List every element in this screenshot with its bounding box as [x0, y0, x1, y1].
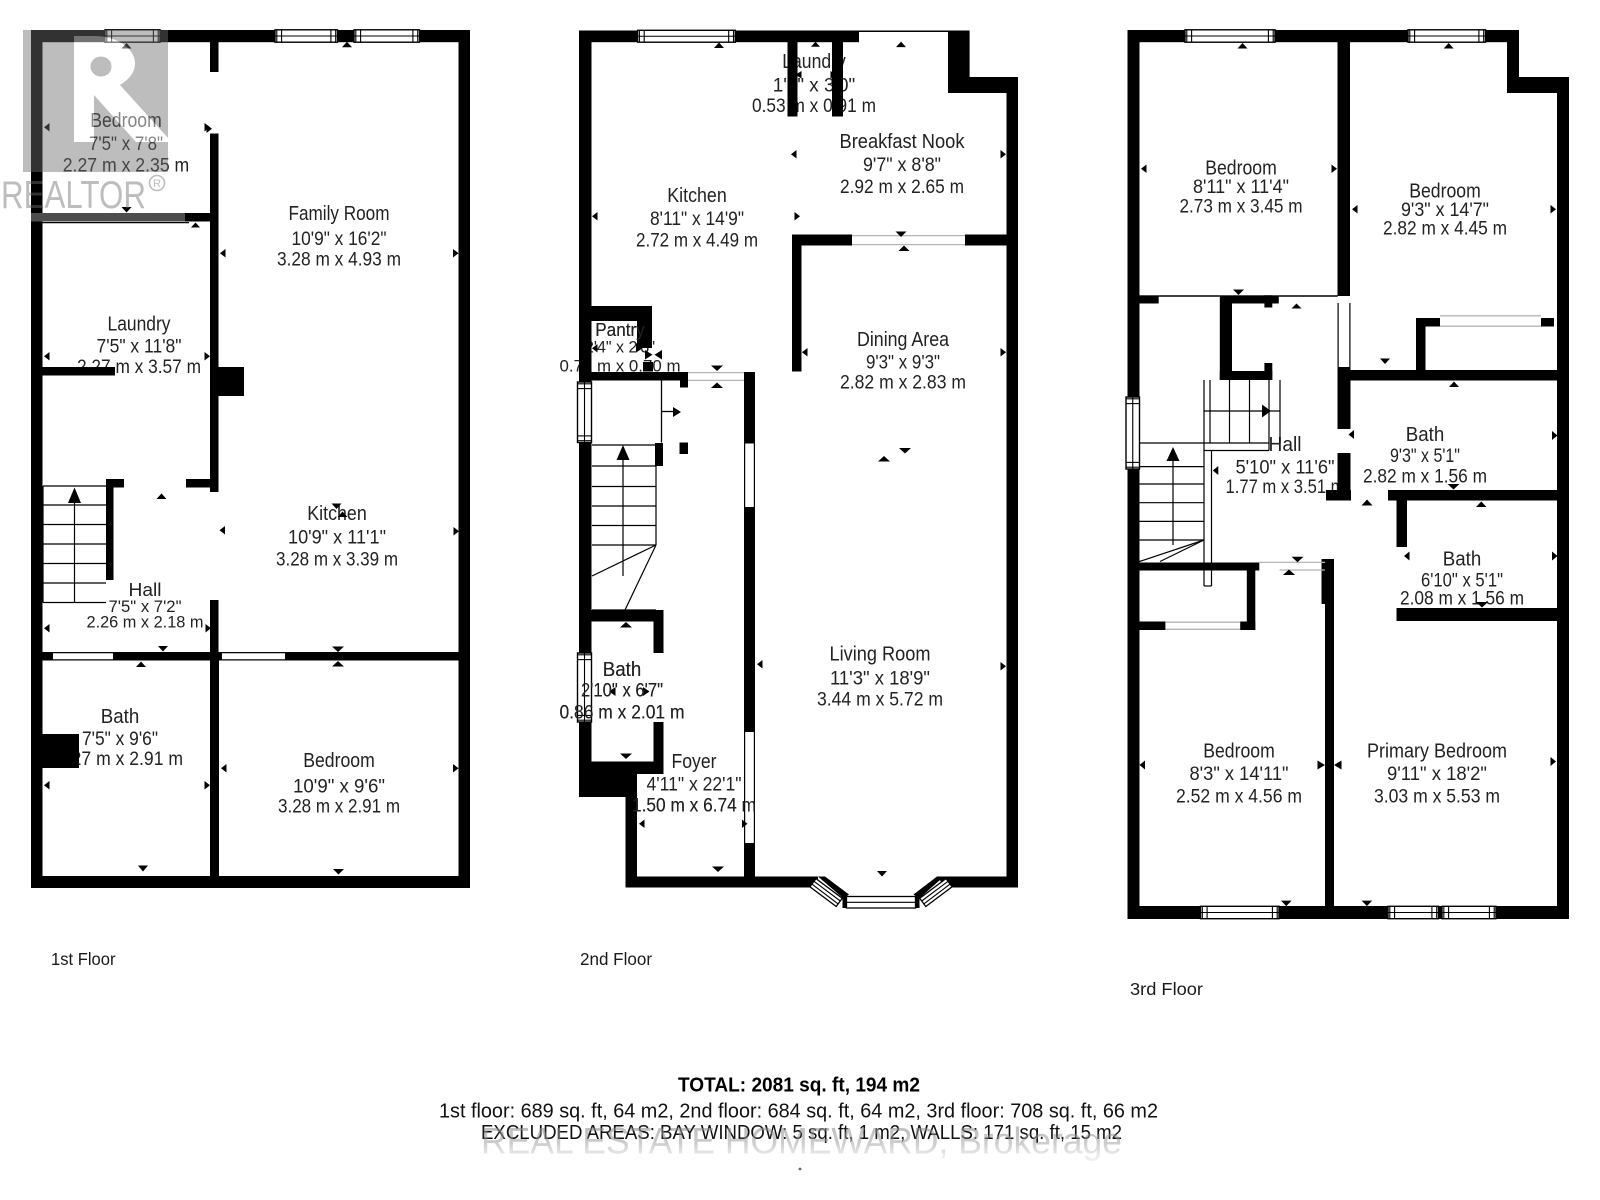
svg-text:8'11" x 11'4": 8'11" x 11'4": [1193, 177, 1289, 198]
svg-text:2.26 m x 2.18 m: 2.26 m x 2.18 m: [87, 613, 204, 632]
svg-text:Hall: Hall: [1269, 434, 1302, 456]
svg-text:2.82 m x 4.45 m: 2.82 m x 4.45 m: [1383, 219, 1507, 240]
svg-text:8'11" x 14'9": 8'11" x 14'9": [650, 209, 744, 230]
svg-text:2.52 m x 4.56 m: 2.52 m x 4.56 m: [1176, 787, 1302, 808]
svg-text:2nd Floor: 2nd Floor: [580, 949, 652, 969]
svg-text:Dining Area: Dining Area: [857, 329, 950, 351]
svg-text:Bedroom: Bedroom: [1203, 741, 1275, 763]
svg-text:Foyer: Foyer: [672, 751, 717, 773]
svg-text:Family Room: Family Room: [289, 203, 390, 225]
svg-text:2.92 m x 2.65 m: 2.92 m x 2.65 m: [840, 177, 964, 198]
svg-text:10'9" x 16'2": 10'9" x 16'2": [292, 229, 387, 250]
svg-text:Kitchen: Kitchen: [667, 185, 727, 207]
svg-text:Bath: Bath: [1406, 424, 1445, 446]
svg-text:Primary Bedroom: Primary Bedroom: [1367, 741, 1507, 763]
svg-text:Bath: Bath: [603, 659, 642, 681]
svg-text:REAL ESTATE HOMEWARD, Brokerag: REAL ESTATE HOMEWARD, Brokerage: [481, 1121, 1122, 1162]
svg-text:3.03 m x 5.53 m: 3.03 m x 5.53 m: [1374, 787, 1500, 808]
svg-text:7'5" x 9'6": 7'5" x 9'6": [82, 729, 158, 750]
svg-text:9'7" x 8'8": 9'7" x 8'8": [863, 155, 941, 176]
svg-text:1st floor: 689 sq. ft, 64 m2,: 1st floor: 689 sq. ft, 64 m2, 2nd floor:…: [439, 1100, 1158, 1123]
svg-text:R: R: [153, 178, 161, 190]
svg-text:Bedroom: Bedroom: [303, 750, 375, 772]
svg-text:0.53 m x 0.91 m: 0.53 m x 0.91 m: [752, 96, 876, 117]
svg-text:0.86 m x 2.01 m: 0.86 m x 2.01 m: [560, 703, 685, 724]
svg-text:TOTAL: 2081 sq. ft, 194 m2: TOTAL: 2081 sq. ft, 194 m2: [678, 1074, 920, 1097]
svg-text:2.73 m x 3.45 m: 2.73 m x 3.45 m: [1180, 197, 1303, 218]
svg-text:Breakfast Nook: Breakfast Nook: [840, 131, 966, 153]
svg-text:2.08 m x 1.56 m: 2.08 m x 1.56 m: [1400, 589, 1524, 610]
svg-text:5'10" x 11'6": 5'10" x 11'6": [1236, 458, 1335, 479]
svg-text:10'9" x 11'1": 10'9" x 11'1": [288, 528, 386, 549]
svg-text:2'10" x 6'7": 2'10" x 6'7": [581, 681, 663, 702]
svg-text:2.72 m x 4.49 m: 2.72 m x 4.49 m: [636, 231, 758, 252]
svg-text:10'9" x 9'6": 10'9" x 9'6": [293, 777, 385, 798]
svg-text:4'11" x 22'1": 4'11" x 22'1": [647, 775, 742, 796]
svg-text:3.28 m x 2.91 m: 3.28 m x 2.91 m: [278, 797, 400, 818]
svg-text:Living Room: Living Room: [830, 644, 931, 666]
svg-text:Bath: Bath: [1443, 549, 1482, 571]
svg-text:8'3" x 14'11": 8'3" x 14'11": [1190, 764, 1289, 785]
svg-text:Laundry: Laundry: [108, 314, 171, 336]
svg-text:1st Floor: 1st Floor: [51, 949, 116, 969]
svg-text:3.44 m x 5.72 m: 3.44 m x 5.72 m: [817, 690, 943, 711]
svg-text:3rd Floor: 3rd Floor: [1130, 979, 1203, 999]
svg-text:REALTOR: REALTOR: [1, 174, 146, 217]
svg-text:3.28 m x 3.39 m: 3.28 m x 3.39 m: [276, 550, 398, 571]
svg-text:7'5" x 11'8": 7'5" x 11'8": [97, 337, 182, 358]
svg-text:2.82 m x 1.56 m: 2.82 m x 1.56 m: [1363, 467, 1487, 488]
svg-text:2.82 m x 2.83 m: 2.82 m x 2.83 m: [840, 373, 966, 394]
svg-text:9'11" x 18'2": 9'11" x 18'2": [1387, 764, 1487, 785]
svg-text:Bath: Bath: [101, 706, 140, 728]
svg-text:3.28 m x 4.93 m: 3.28 m x 4.93 m: [277, 250, 401, 271]
svg-text:9'3" x 5'1": 9'3" x 5'1": [1390, 446, 1460, 467]
svg-text:Pantry: Pantry: [595, 320, 645, 340]
svg-text:1.50 m x 6.74 m: 1.50 m x 6.74 m: [632, 796, 756, 817]
svg-text:11'3" x 18'9": 11'3" x 18'9": [830, 669, 930, 690]
svg-text:9'3" x 9'3": 9'3" x 9'3": [866, 353, 940, 374]
